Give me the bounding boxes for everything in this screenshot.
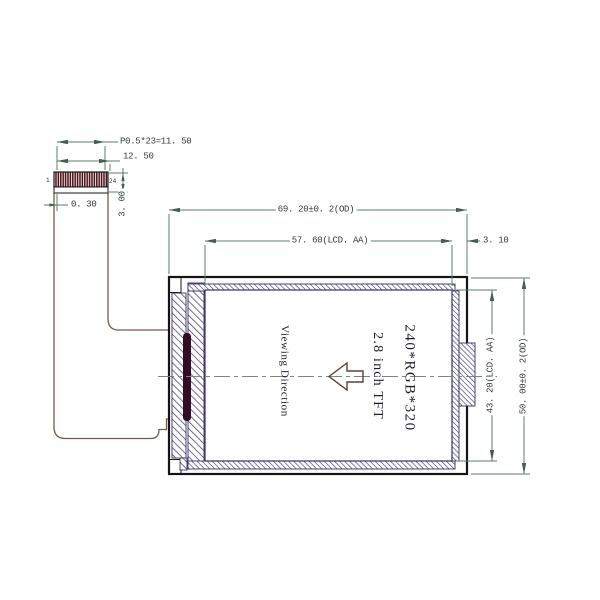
- dim-active-height: 43. 20(LCD. AA): [487, 335, 496, 416]
- dim-outer-width: 69. 20±0. 2(OD): [276, 206, 357, 215]
- dim-outer-height: 50. 00±0. 2(OD): [520, 336, 529, 417]
- panel-resolution-label: 240*RGB*320: [402, 324, 417, 431]
- engineering-drawing: [0, 0, 600, 600]
- viewing-direction-label: Viewing Direction: [279, 325, 290, 417]
- bezel-hatch-left-foot: [180, 458, 187, 470]
- dim-active-width: 57. 60(LCD. AA): [290, 237, 371, 246]
- drawing-canvas: P0.5*23=11. 50 12. 50 0. 30 3. 00 1 24 6…: [0, 0, 600, 600]
- dim-connector-width: 12. 50: [123, 153, 154, 162]
- connector-strip: [54, 172, 108, 193]
- dim-connector-height: 3. 00: [119, 189, 128, 219]
- bezel-hatch-bottom: [188, 461, 455, 469]
- fpc-cable: [54, 193, 172, 439]
- panel-size-label: 2.8 inch TFT: [370, 332, 384, 420]
- dim-connector-pitch: P0.5*23=11. 50: [120, 138, 191, 147]
- pin-label-1: 1: [46, 178, 50, 184]
- pin-label-24: 24: [109, 179, 116, 185]
- dim-right-margin: 3. 10: [483, 237, 509, 246]
- fpc-tab-right: [459, 343, 475, 406]
- dim-connector-edge-margin: 0. 30: [71, 201, 97, 210]
